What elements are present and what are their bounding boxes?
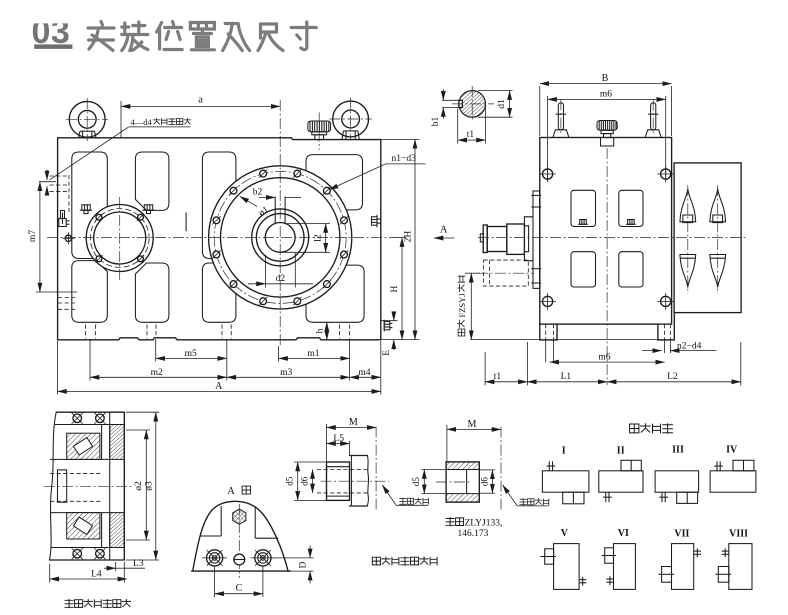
svg-text:b1: b1	[431, 117, 441, 127]
svg-text:ø2: ø2	[134, 481, 144, 491]
svg-text:h: h	[315, 328, 325, 333]
svg-text:m2: m2	[151, 368, 163, 378]
svg-text:L3: L3	[133, 559, 144, 569]
svg-text:n2−d4: n2−d4	[677, 341, 702, 351]
svg-text:ø3: ø3	[144, 481, 154, 491]
svg-text:I: I	[562, 446, 566, 457]
svg-text:d2: d2	[276, 274, 286, 284]
svg-text:A: A	[215, 381, 223, 392]
svg-text:VIII: VIII	[729, 529, 748, 540]
svg-text:n1−d3: n1−d3	[392, 154, 417, 164]
svg-text:FZSYJ: FZSYJ	[457, 293, 467, 318]
svg-text:2H: 2H	[404, 231, 414, 243]
svg-text:m6: m6	[598, 353, 610, 363]
svg-text:VI: VI	[618, 528, 629, 539]
svg-text:L5: L5	[333, 434, 344, 444]
svg-text:146.173: 146.173	[457, 529, 488, 539]
svg-text:d5: d5	[411, 477, 421, 487]
svg-text:L4: L4	[91, 570, 102, 580]
svg-text:L2: L2	[667, 372, 678, 382]
svg-text:t1: t1	[494, 372, 502, 382]
svg-text:d6: d6	[479, 477, 489, 487]
svg-text:D: D	[298, 561, 308, 568]
svg-text:V: V	[561, 528, 569, 539]
svg-text:d1: d1	[497, 99, 507, 109]
svg-text:II: II	[617, 446, 625, 457]
svg-text:C: C	[236, 583, 243, 594]
svg-text:d5: d5	[285, 476, 295, 486]
svg-text:d6: d6	[299, 476, 309, 486]
svg-text:E: E	[382, 350, 392, 356]
svg-text:VII: VII	[674, 529, 689, 540]
svg-text:A: A	[440, 225, 448, 236]
svg-text:L1: L1	[561, 372, 572, 382]
svg-text:m7: m7	[28, 230, 38, 242]
svg-text:IV: IV	[726, 445, 738, 456]
svg-text:m4: m4	[358, 368, 370, 378]
svg-text:m3: m3	[280, 368, 292, 378]
svg-text:H: H	[390, 285, 400, 292]
svg-text:M: M	[349, 417, 358, 428]
svg-text:b2: b2	[253, 188, 263, 198]
svg-text:III: III	[672, 445, 684, 456]
svg-text:M: M	[468, 419, 477, 430]
svg-text:m1: m1	[307, 349, 319, 359]
svg-text:ZLYJ133,: ZLYJ133,	[465, 518, 503, 528]
svg-text:m5: m5	[185, 349, 197, 359]
svg-text:t1: t1	[467, 130, 475, 140]
svg-text:a: a	[198, 94, 203, 105]
svg-text:l2: l2	[314, 234, 324, 242]
svg-text:A: A	[227, 486, 235, 497]
svg-text:4—d4: 4—d4	[131, 117, 153, 127]
svg-text:B: B	[602, 73, 609, 84]
svg-text:m6: m6	[600, 90, 612, 100]
